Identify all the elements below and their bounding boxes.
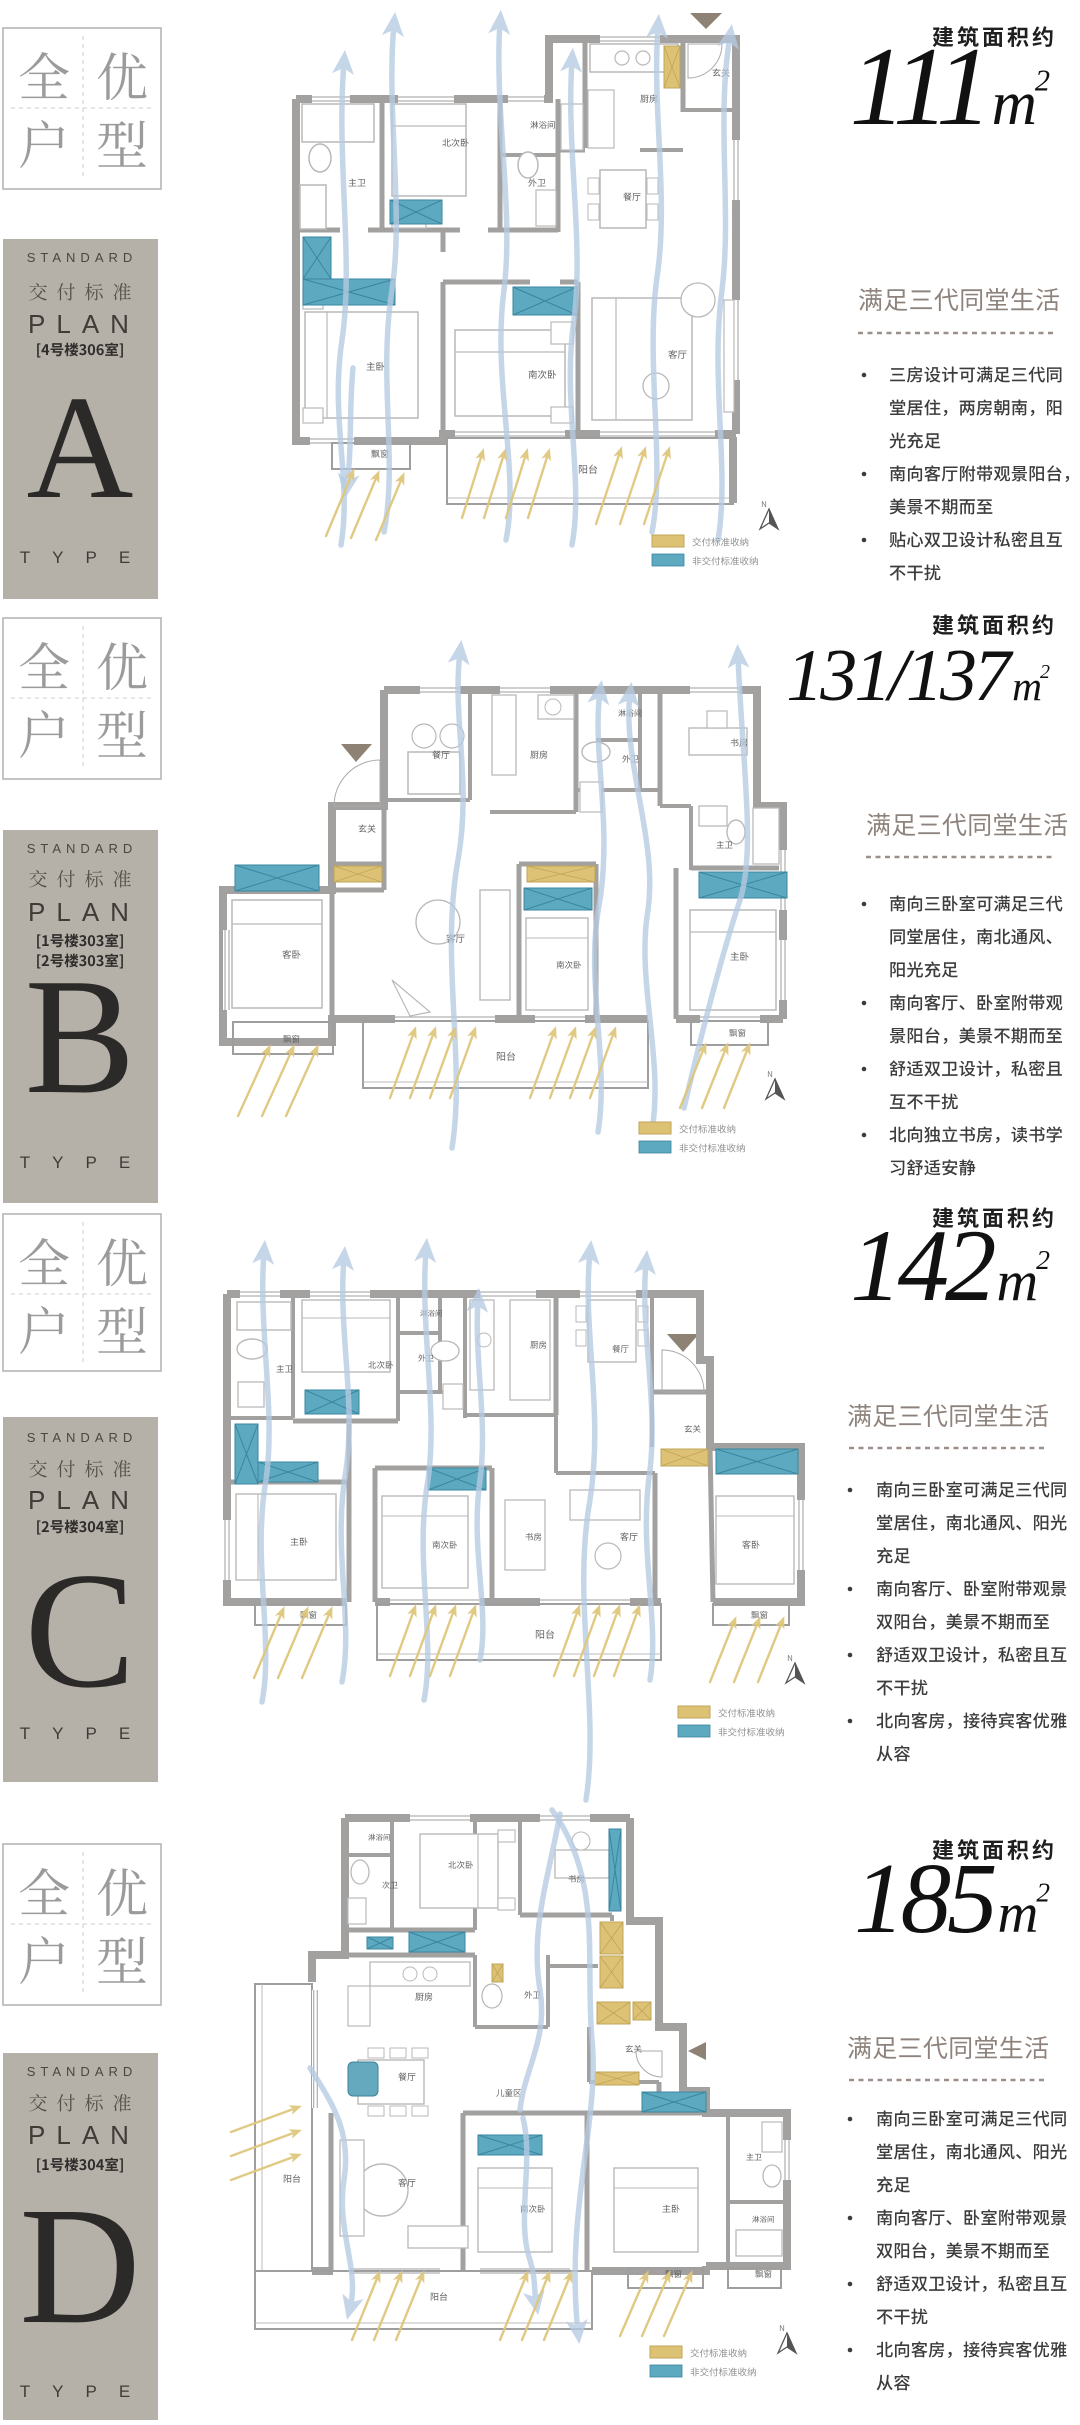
svg-text:PLAN: PLAN — [28, 1485, 140, 1515]
svg-text:STANDARD: STANDARD — [27, 841, 138, 856]
svg-text:TYPE: TYPE — [20, 2382, 152, 2401]
svg-text:D: D — [19, 2173, 140, 2359]
svg-text:B: B — [25, 944, 136, 1128]
svg-text:TYPE: TYPE — [20, 1724, 152, 1743]
svg-text:185m2: 185m2 — [854, 1842, 1050, 1954]
svg-text:142m2: 142m2 — [850, 1209, 1050, 1323]
svg-text:STANDARD: STANDARD — [27, 250, 138, 265]
svg-text:131/137m2: 131/137m2 — [786, 635, 1050, 717]
svg-text:A: A — [27, 366, 134, 530]
svg-text:PLAN: PLAN — [28, 897, 140, 927]
svg-text:TYPE: TYPE — [20, 548, 152, 567]
svg-text:STANDARD: STANDARD — [27, 1430, 138, 1445]
svg-text:PLAN: PLAN — [28, 2120, 140, 2150]
svg-text:C: C — [25, 1538, 136, 1722]
svg-text:STANDARD: STANDARD — [27, 2064, 138, 2079]
svg-text:PLAN: PLAN — [28, 309, 140, 339]
svg-text:TYPE: TYPE — [20, 1153, 152, 1172]
